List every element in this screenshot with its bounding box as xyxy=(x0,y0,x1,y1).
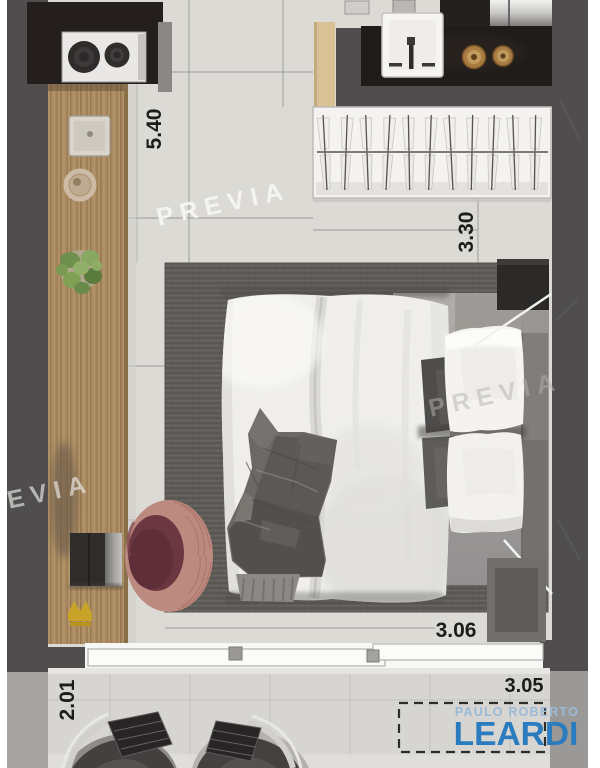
svg-text:3.05: 3.05 xyxy=(505,675,544,697)
svg-text:3.30: 3.30 xyxy=(455,212,478,253)
svg-text:LEARDI: LEARDI xyxy=(454,716,579,753)
svg-text:3.06: 3.06 xyxy=(436,619,477,642)
svg-text:2.01: 2.01 xyxy=(56,679,79,720)
svg-text:5.40: 5.40 xyxy=(143,109,166,150)
